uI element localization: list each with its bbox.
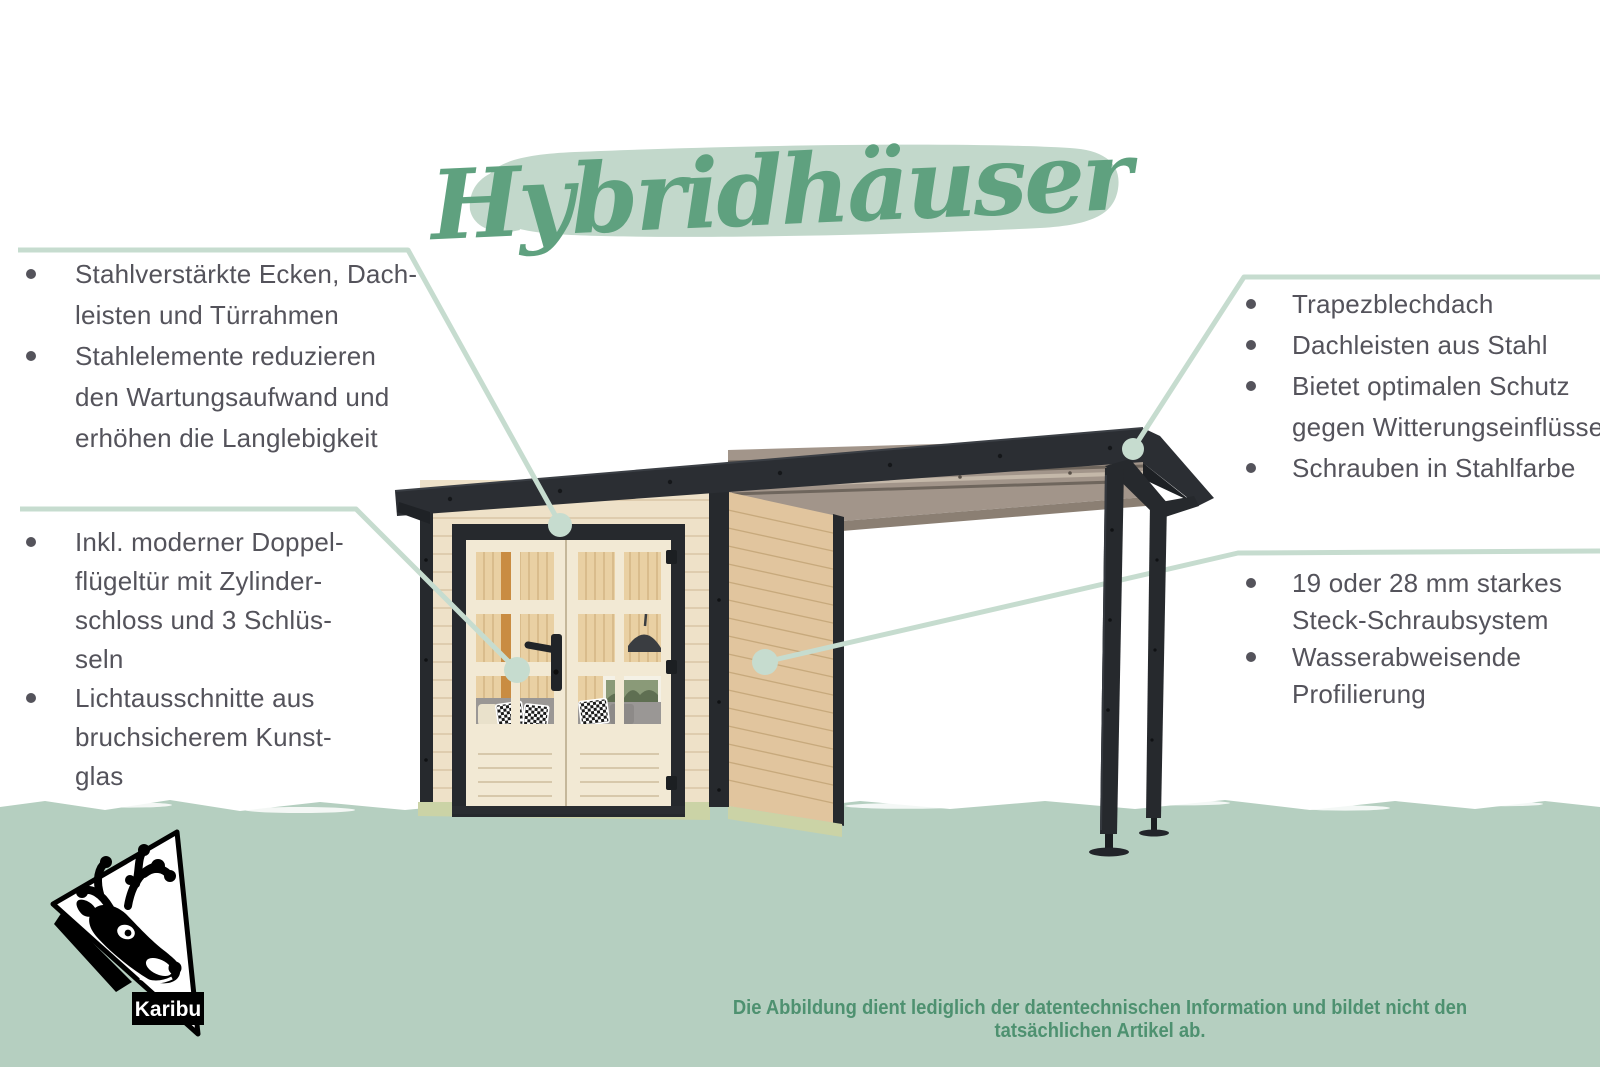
callout-dot-door — [504, 657, 530, 683]
feature-line: den Wartungsaufwand und — [24, 377, 417, 418]
feature-text: Steck-Schraubsystem — [1292, 605, 1549, 635]
feature-text: Lichtausschnitte aus — [75, 683, 315, 713]
feature-line: Stahlelemente reduzieren — [24, 336, 417, 377]
feature-text: leisten und Türrahmen — [75, 300, 339, 330]
feature-line: flügeltür mit Zylinder- — [24, 562, 344, 601]
bullet-dot — [1246, 299, 1256, 309]
feature-text: Bietet optimalen Schutz — [1292, 371, 1570, 401]
side-wall — [728, 492, 844, 837]
feature-text: den Wartungsaufwand und — [75, 382, 389, 412]
feature-line: Stahlverstärkte Ecken, Dach- — [24, 254, 417, 295]
feature-line: Steck-Schraubsystem — [1244, 602, 1562, 639]
feature-line: Wasserabweisende — [1244, 639, 1562, 676]
feature-line: Trapezblechdach — [1244, 284, 1600, 325]
feature-line: Bietet optimalen Schutz — [1244, 366, 1600, 407]
canopy-posts — [1089, 459, 1199, 857]
feature-line: erhöhen die Langlebigkeit — [24, 418, 417, 459]
feature-line: Schrauben in Stahlfarbe — [1244, 448, 1600, 489]
callout-dot-corners — [548, 513, 572, 537]
feature-line: Profilierung — [1244, 676, 1562, 713]
callout-block-door: Inkl. moderner Doppel- flügeltür mit Zyl… — [24, 523, 344, 796]
bullet-dot — [1246, 463, 1256, 473]
feature-text: 19 oder 28 mm starkes — [1292, 568, 1562, 598]
feature-text: Inkl. moderner Doppel- — [75, 527, 344, 557]
feature-line: glas — [24, 757, 344, 796]
callout-block-roof: Trapezblechdach Dachleisten aus Stahl Bi… — [1244, 284, 1600, 489]
callout-block-steel: Stahlverstärkte Ecken, Dach- leisten und… — [24, 254, 417, 459]
feature-text: Schrauben in Stahlfarbe — [1292, 453, 1576, 483]
callout-dot-roof — [1122, 438, 1144, 460]
feature-text: seln — [75, 644, 124, 674]
callout-block-wall-system: 19 oder 28 mm starkes Steck-Schraubsyste… — [1244, 565, 1562, 713]
feature-text: erhöhen die Langlebigkeit — [75, 423, 378, 453]
feature-text: Profilierung — [1292, 679, 1426, 709]
bullet-dot — [26, 351, 36, 361]
feature-text: Dachleisten aus Stahl — [1292, 330, 1548, 360]
disclaimer: Die Abbildung dient lediglich der datent… — [640, 997, 1560, 1043]
logo-label: Karibu — [135, 998, 202, 1021]
bullet-dot — [1246, 340, 1256, 350]
feature-text: bruchsicherem Kunst- — [75, 722, 332, 752]
disclaimer-text: Die Abbildung dient lediglich der datent… — [677, 997, 1523, 1043]
feature-text: schloss und 3 Schlüs- — [75, 605, 332, 635]
bullet-dot — [1246, 578, 1256, 588]
infographic-page: Karibu Hybridhäuser Stahlverstärkte Ecke… — [0, 0, 1600, 1067]
bullet-dot — [26, 269, 36, 279]
feature-line: seln — [24, 640, 344, 679]
feature-line: Lichtausschnitte aus — [24, 679, 344, 718]
bullet-dot — [26, 693, 36, 703]
bullet-dot — [1246, 652, 1256, 662]
callout-dot-system — [752, 649, 778, 675]
corner-trim-left — [420, 492, 433, 802]
corner-trim-right — [709, 486, 729, 807]
feature-line: Inkl. moderner Doppel- — [24, 523, 344, 562]
feature-text: Stahlelemente reduzieren — [75, 341, 376, 371]
bullet-dot — [26, 537, 36, 547]
feature-text: Trapezblechdach — [1292, 289, 1494, 319]
feature-text: Stahlverstärkte Ecken, Dach- — [75, 259, 417, 289]
feature-text: glas — [75, 761, 124, 791]
feature-line: leisten und Türrahmen — [24, 295, 417, 336]
page-title: Hybridhäuser — [417, 100, 1143, 281]
feature-line: Dachleisten aus Stahl — [1244, 325, 1600, 366]
feature-line: gegen Witterungseinflüsse — [1244, 407, 1600, 448]
feature-text: gegen Witterungseinflüsse — [1292, 412, 1600, 442]
feature-text: flügeltür mit Zylinder- — [75, 566, 322, 596]
feature-line: bruchsicherem Kunst- — [24, 718, 344, 757]
bullet-dot — [1246, 381, 1256, 391]
feature-line: schloss und 3 Schlüs- — [24, 601, 344, 640]
double-door — [452, 524, 685, 817]
feature-text: Wasserabweisende — [1292, 642, 1521, 672]
feature-line: 19 oder 28 mm starkes — [1244, 565, 1562, 602]
